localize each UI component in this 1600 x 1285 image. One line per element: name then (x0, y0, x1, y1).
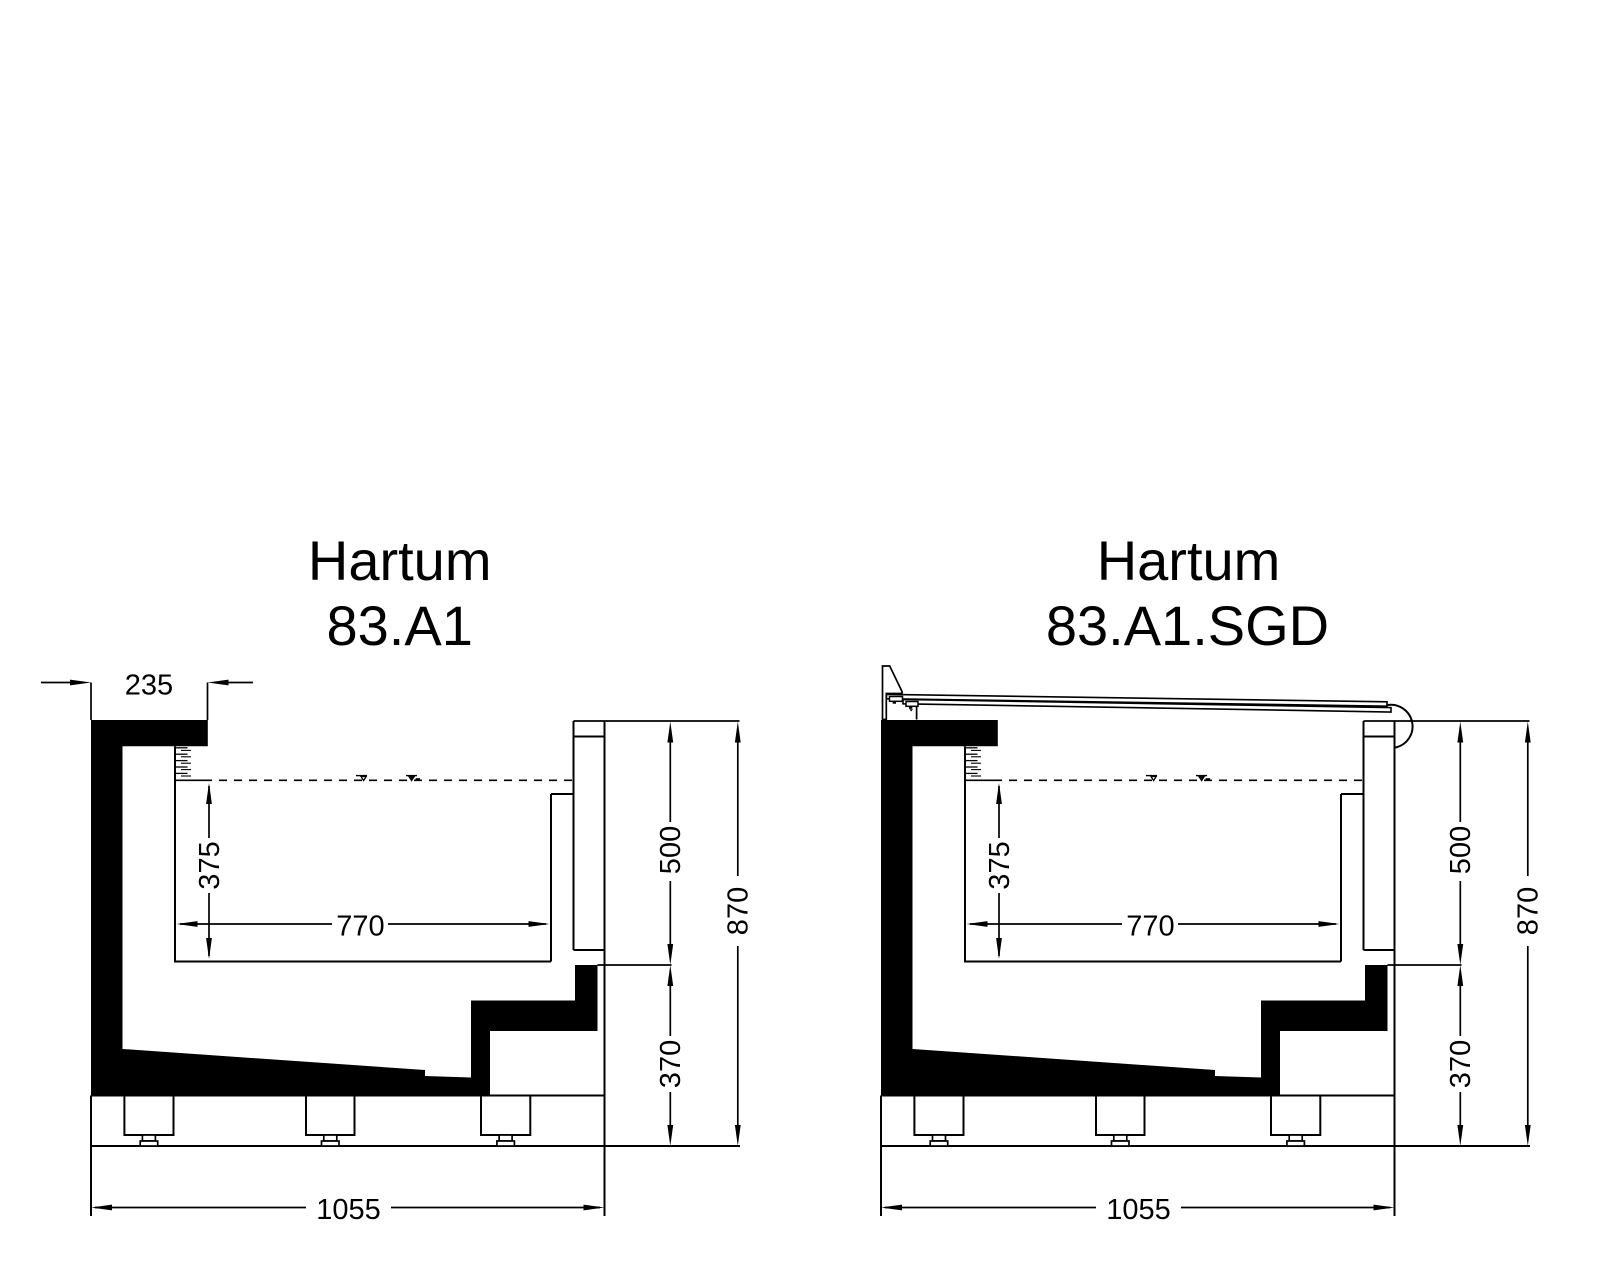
svg-text:770: 770 (1126, 911, 1174, 943)
svg-text:Hartum: Hartum (308, 529, 492, 592)
svg-text:375: 375 (194, 841, 226, 889)
svg-text:870: 870 (1513, 887, 1545, 935)
svg-text:500: 500 (1445, 826, 1477, 874)
svg-text:370: 370 (1445, 1040, 1477, 1088)
svg-text:83.A1: 83.A1 (327, 594, 473, 657)
svg-text:770: 770 (336, 911, 384, 943)
svg-text:870: 870 (723, 887, 755, 935)
svg-text:1055: 1055 (316, 1194, 381, 1226)
svg-text:370: 370 (655, 1040, 687, 1088)
svg-text:500: 500 (655, 826, 687, 874)
svg-text:Hartum: Hartum (1097, 529, 1281, 592)
svg-text:83.A1.SGD: 83.A1.SGD (1046, 594, 1329, 657)
svg-text:1055: 1055 (1106, 1194, 1171, 1226)
svg-text:235: 235 (125, 670, 173, 702)
svg-text:375: 375 (984, 841, 1016, 889)
